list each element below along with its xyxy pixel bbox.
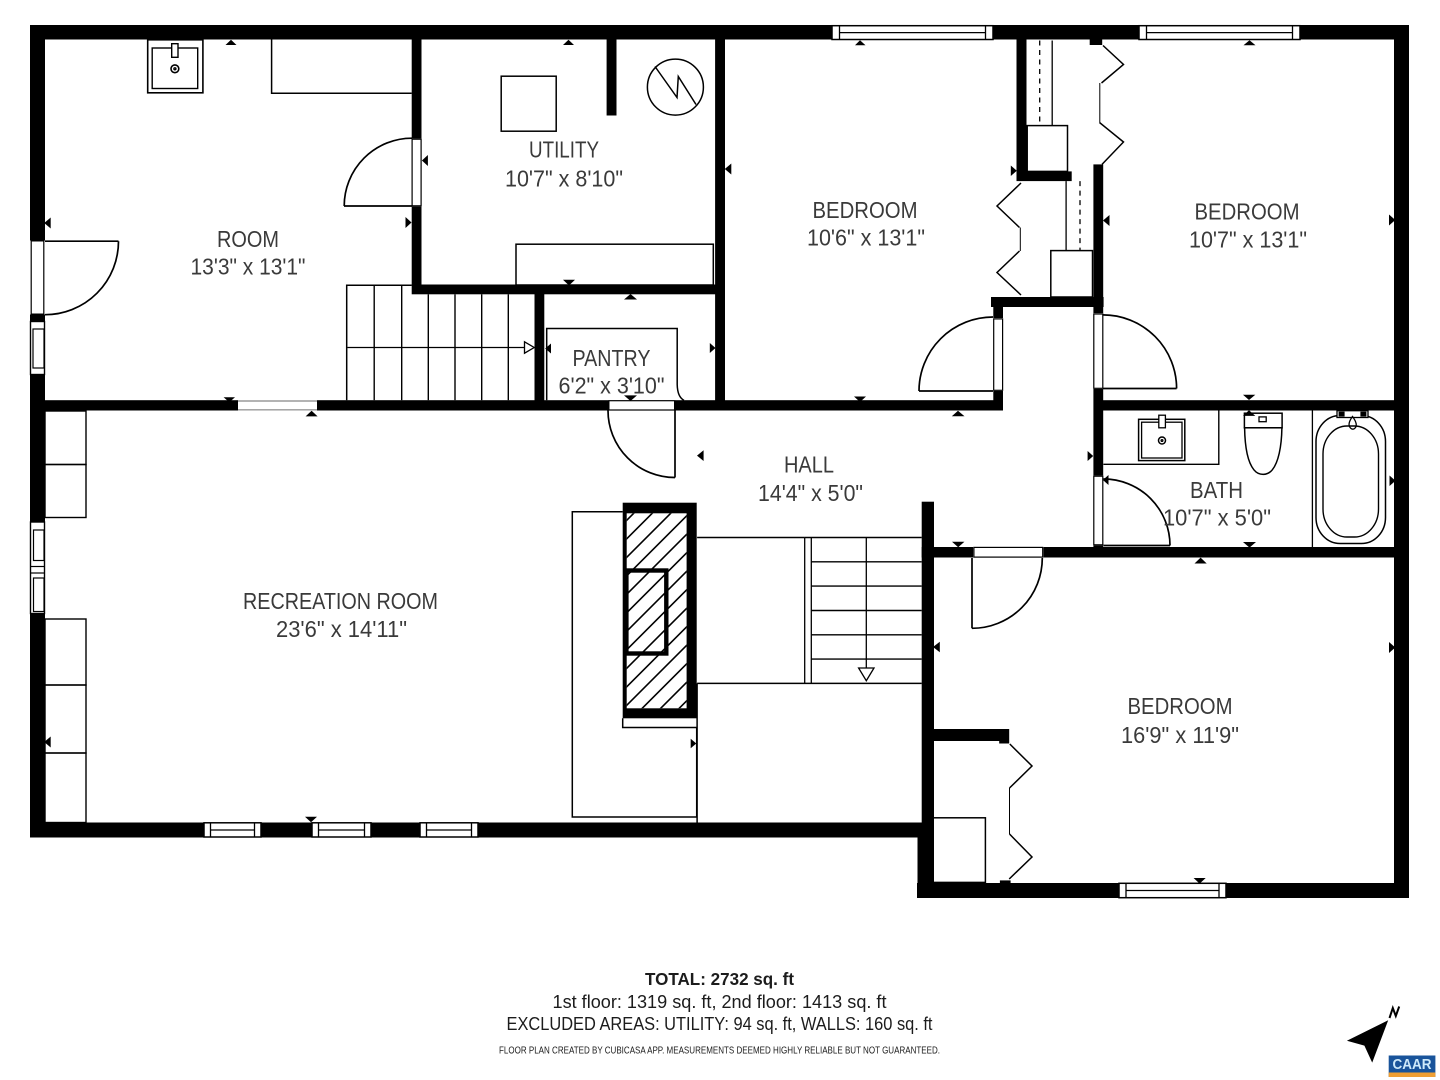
svg-text:EXCLUDED AREAS: UTILITY: 94 sq: EXCLUDED AREAS: UTILITY: 94 sq. ft, WALL… bbox=[507, 1013, 933, 1034]
svg-text:10'7" x 13'1": 10'7" x 13'1" bbox=[1189, 227, 1307, 253]
svg-text:10'7" x 8'10": 10'7" x 8'10" bbox=[505, 166, 623, 192]
svg-text:10'6" x 13'1": 10'6" x 13'1" bbox=[807, 225, 925, 251]
svg-text:BEDROOM: BEDROOM bbox=[1195, 199, 1300, 225]
svg-text:16'9" x 11'9": 16'9" x 11'9" bbox=[1121, 722, 1239, 748]
svg-text:PANTRY: PANTRY bbox=[573, 345, 651, 371]
svg-text:6'2" x 3'10": 6'2" x 3'10" bbox=[559, 373, 665, 399]
svg-text:TOTAL: 2732 sq. ft: TOTAL: 2732 sq. ft bbox=[645, 969, 794, 989]
svg-text:CAAR: CAAR bbox=[1393, 1057, 1432, 1073]
svg-text:14'4" x 5'0": 14'4" x 5'0" bbox=[758, 480, 863, 506]
svg-text:FLOOR PLAN CREATED BY CUBICASA: FLOOR PLAN CREATED BY CUBICASA APP. MEAS… bbox=[499, 1045, 940, 1057]
svg-text:ROOM: ROOM bbox=[217, 226, 279, 252]
svg-text:UTILITY: UTILITY bbox=[529, 137, 599, 163]
svg-text:1st floor: 1319 sq. ft, 2nd fl: 1st floor: 1319 sq. ft, 2nd floor: 1413 … bbox=[553, 991, 887, 1012]
svg-text:RECREATION ROOM: RECREATION ROOM bbox=[243, 588, 438, 614]
svg-text:23'6" x 14'11": 23'6" x 14'11" bbox=[276, 616, 407, 642]
svg-text:BEDROOM: BEDROOM bbox=[1128, 693, 1233, 719]
svg-text:10'7" x 5'0": 10'7" x 5'0" bbox=[1163, 505, 1271, 531]
svg-text:HALL: HALL bbox=[784, 452, 834, 478]
svg-text:BEDROOM: BEDROOM bbox=[813, 197, 918, 223]
svg-text:BATH: BATH bbox=[1190, 477, 1243, 503]
svg-text:13'3" x 13'1": 13'3" x 13'1" bbox=[191, 254, 306, 280]
